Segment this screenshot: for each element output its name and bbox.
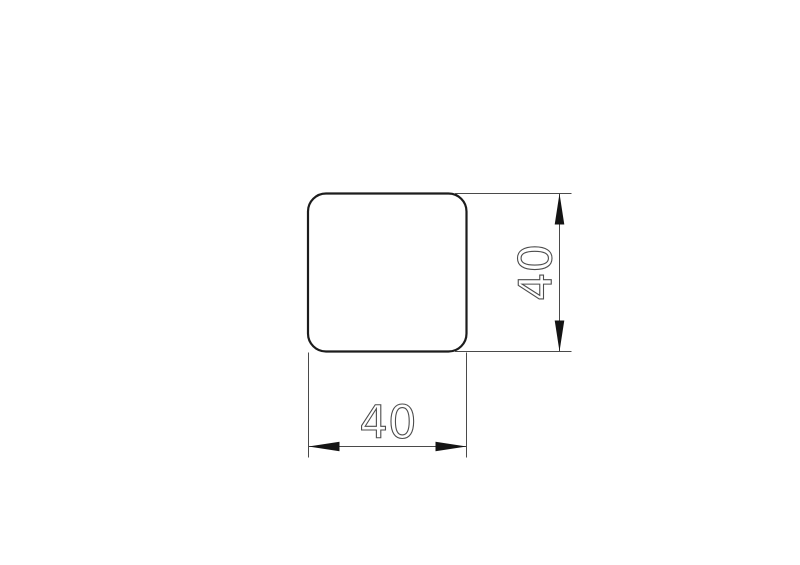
drawing-canvas: 40 40 bbox=[0, 0, 800, 565]
width-dimension: 40 bbox=[309, 353, 467, 458]
height-dimension-label: 40 bbox=[510, 244, 563, 301]
profile-outline bbox=[308, 194, 467, 352]
width-dimension-label: 40 bbox=[359, 396, 416, 449]
arrowhead-up-icon bbox=[555, 194, 565, 225]
technical-drawing: 40 40 bbox=[0, 0, 800, 565]
arrowhead-right-icon bbox=[436, 442, 467, 452]
arrowhead-left-icon bbox=[309, 442, 340, 452]
arrowhead-down-icon bbox=[555, 321, 565, 352]
height-dimension: 40 bbox=[455, 194, 572, 352]
